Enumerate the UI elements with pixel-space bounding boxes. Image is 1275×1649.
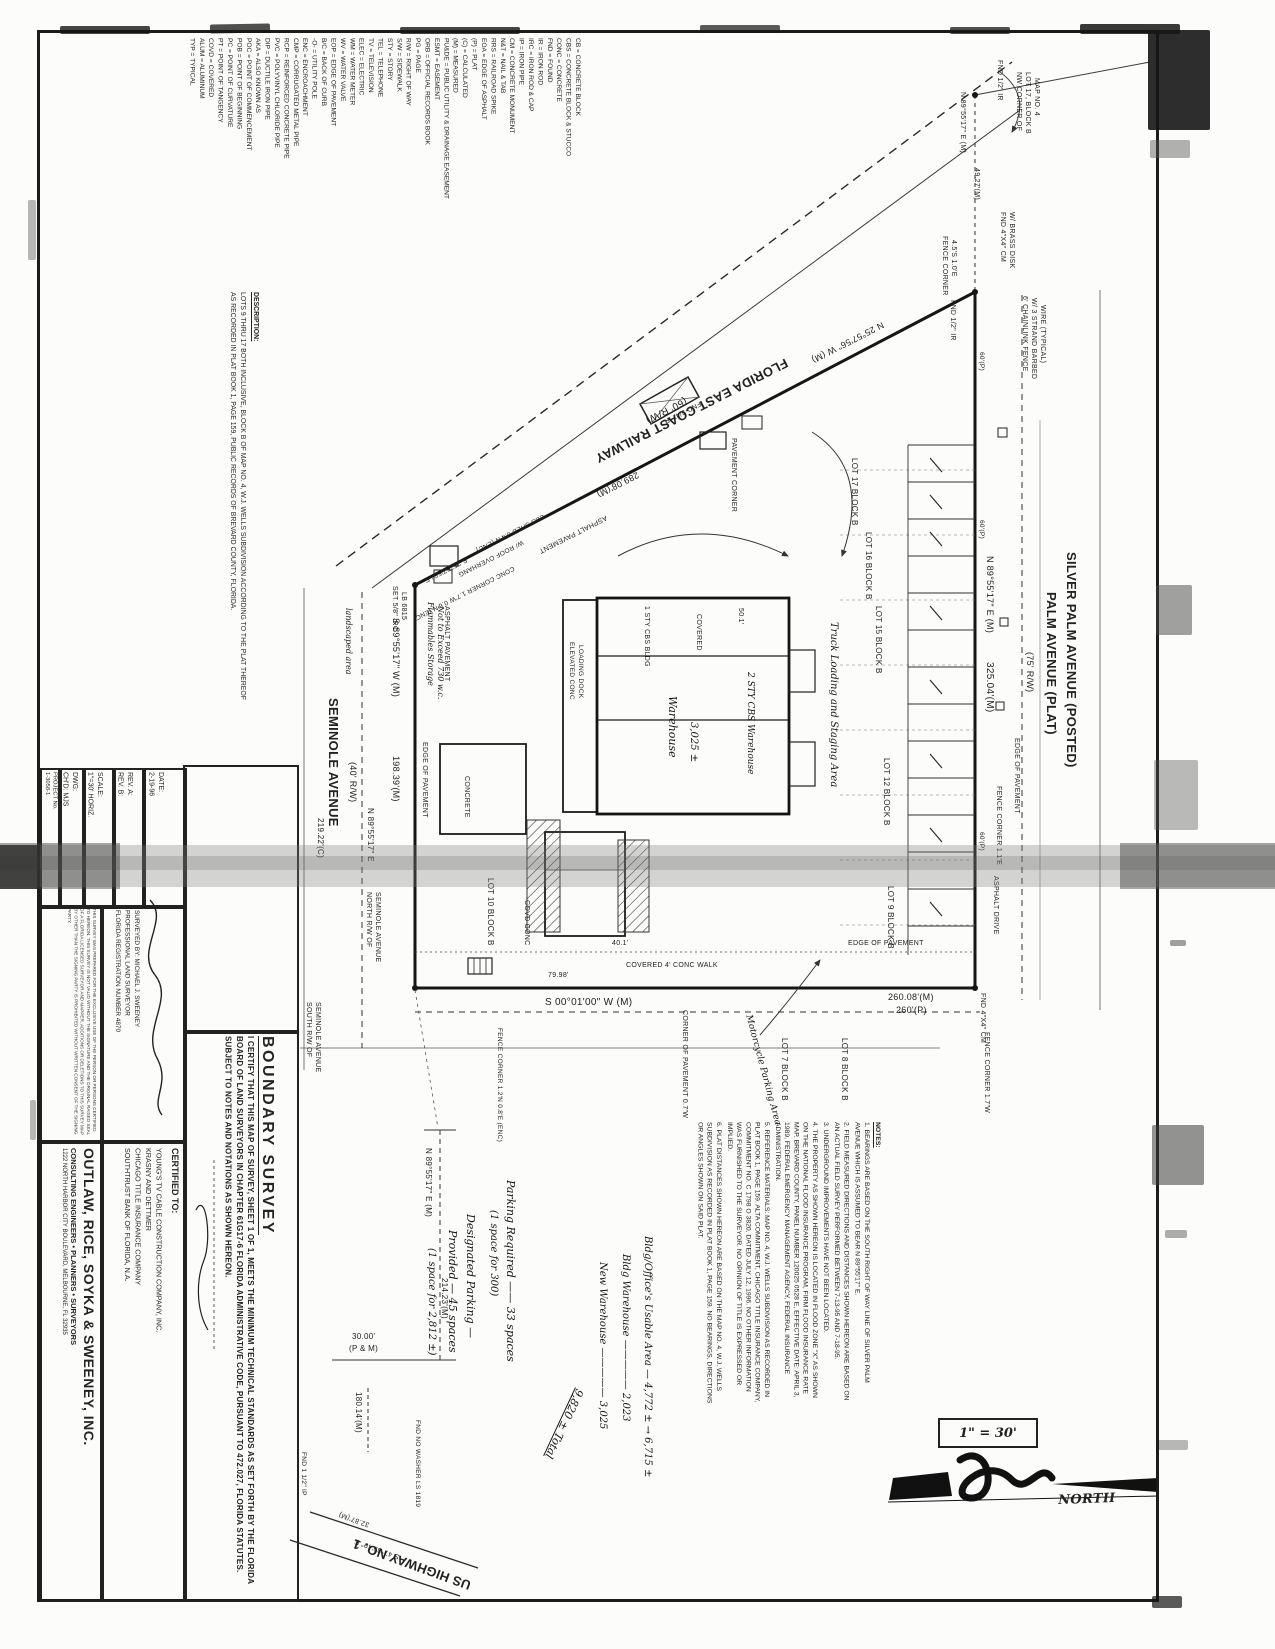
scanned-survey-page: CB = CONCRETE BLOCKCBS = CONCRETE BLOCK …: [0, 0, 1275, 1649]
map-annotation: FENCE CORNER 1.2'N 0.8'E (ENC): [496, 1028, 503, 1142]
map-annotation: MAP NO. 4: [1033, 78, 1040, 116]
map-annotation: COVERED 4' CONC WALK: [626, 962, 718, 969]
map-annotation: LOT 9 BLOCK B: [886, 886, 894, 949]
surveyed-by: SURVEYED BY: MICHAEL J. SWEENEY PROFESSI…: [103, 910, 141, 1136]
map-annotation: COVERED: [695, 614, 702, 651]
map-annotation: FND 1/2" IR: [949, 300, 956, 341]
map-annotation: (1 space for 2,812 ±): [426, 1248, 436, 1355]
description-body: LOTS 9 THRU 17 BOTH INCLUSIVE, BLOCK B O…: [227, 292, 247, 706]
page-title: BOUNDARY SURVEY: [258, 1036, 276, 1304]
legend-item: EOA = EDGE OF ASPHALT: [479, 38, 488, 370]
company-name: OUTLAW, RICE, SOYKA & SWEENEY, INC.: [79, 1148, 98, 1594]
map-annotation: 2 STY CBS Warehouse: [745, 672, 754, 775]
scale-box: 1" = 30': [938, 1418, 1038, 1448]
map-annotation: 219.22'(C): [316, 818, 324, 858]
legend-item: PVC = POLYVINYL CHLORIDE PIPE: [272, 38, 281, 370]
map-annotation: 1 STY CBS BLDG: [643, 606, 650, 667]
note-item: 4. THE PROPERTY AS SHOWN HEREON IS LOCAT…: [773, 1122, 819, 1408]
map-annotation: New Warehouse ————— 3,025: [597, 1262, 607, 1429]
map-annotation: LOADING DOCK: [577, 645, 584, 698]
map-annotation: SEMINOLE AVENUE: [327, 698, 340, 827]
map-annotation: 260.08'(M): [888, 993, 934, 1002]
map-annotation: FND 1/2" IR: [996, 60, 1003, 101]
notes-heading: NOTES:: [873, 1122, 882, 1408]
legend-item: S/W = SIDEWALK: [394, 38, 403, 370]
legend-item: ENC = ENCROACHMENT: [300, 38, 309, 370]
map-annotation: 40.1': [612, 940, 628, 947]
legend-item: PG = PAGE: [413, 38, 422, 370]
note-item: 3. UNDERGROUND IMPROVEMENTS HAVE NOT BEE…: [821, 1122, 830, 1408]
map-annotation: COVD CONC: [523, 900, 530, 945]
legend-item: CMP = CORRUGATED METAL PIPE: [290, 38, 299, 370]
map-annotation: PAVEMENT CORNER: [730, 438, 737, 512]
legend-item: IP = IRON PIPE: [516, 38, 525, 370]
legend-item: (P) = PLAT: [469, 38, 478, 370]
legend-item: CONC = CONCRETE: [554, 38, 563, 370]
description-heading: DESCRIPTION:: [250, 292, 260, 706]
notes: NOTES: 1. BEARINGS ARE BASED ON THE SOUT…: [642, 1122, 882, 1408]
map-annotation: NW CORNER OF: [1015, 72, 1022, 131]
certified-to-item: SOUTHTRUST BANK OF FLORIDA, N.A.: [122, 1148, 133, 1592]
legend-item: STY = STORY: [384, 38, 393, 370]
company-address: 1222 NORTH HARBOR CITY BOULEVARD, MELBOU…: [59, 1148, 68, 1594]
legend-item: EOP = EDGE OF PAVEMENT: [328, 38, 337, 370]
legend-item: TV = TELEVISION: [366, 38, 375, 370]
map-annotation: LOT 16 BLOCK B: [864, 532, 872, 600]
map-annotation: LOT 8 BLOCK B: [840, 1038, 848, 1101]
map-annotation: LOT 15 BLOCK B: [874, 606, 882, 674]
company-tagline: CONSULTING ENGINEERS • PLANNERS • SURVEY…: [68, 1148, 79, 1594]
map-annotation: EDGE OF PAVEMENT: [421, 742, 428, 818]
map-annotation: FENCE CORNER 1.7'W: [983, 1032, 990, 1113]
map-annotation: PALM AVENUE (PLAT): [1045, 592, 1058, 735]
note-item: 6. PLAT DISTANCES SHOWN HEREON ARE BASED…: [695, 1122, 723, 1408]
legend-item: (M) = MEASURED: [450, 38, 459, 370]
map-annotation: 50.1': [737, 608, 744, 624]
company-block: OUTLAW, RICE, SOYKA & SWEENEY, INC. CONS…: [42, 1148, 98, 1594]
certification-statement: I CERTIFY THAT THIS MAP OF SURVEY, SHEET…: [186, 1036, 256, 1588]
legend-item: WM = WATER METER: [347, 38, 356, 370]
date-field: DATE:2-19-96: [146, 772, 165, 902]
scale-field: SCALE:1"=30' HORIZ.: [85, 772, 104, 902]
map-annotation: FND NO WASHER LS 1819: [414, 1420, 421, 1507]
map-annotation: 198.39'(M): [391, 756, 400, 802]
legend-item: CBS = CONCRETE BLOCK & STUCCO: [563, 38, 572, 370]
legend-item: -O- = UTILITY POLE: [309, 38, 318, 370]
map-annotation: NORTH: [1058, 1492, 1116, 1507]
map-annotation: FENCE CORNER 1.1'E: [995, 786, 1002, 865]
map-annotation: 325.04'(M): [984, 662, 994, 713]
map-annotation: 79.98': [548, 972, 569, 979]
map-annotation: S 00°01'00" W (M): [545, 998, 632, 1008]
legend-item: TEL = TELEPHONE: [375, 38, 384, 370]
legend-item: ORB = OFFICIAL RECORDS BOOK: [422, 38, 431, 370]
map-annotation: Not to Exceed 730 w.c.: [436, 606, 444, 699]
titleblock-empty-cell: [183, 765, 299, 1034]
note-item: 5. REFERENCE MATERIALS: MAP NO. 4, W.J. …: [725, 1122, 771, 1408]
map-annotation: W/ BRASS DISK: [1008, 212, 1015, 268]
map-annotation: FND 1 1/2" IP: [300, 1452, 307, 1496]
map-annotation: CORNER OF PAVEMENT 0.7'W: [681, 1010, 688, 1118]
map-annotation: 3,025 ±: [688, 722, 698, 762]
map-annotation: landscaped area: [344, 608, 352, 675]
map-annotation: SILVER PALM AVENUE (POSTED): [1065, 552, 1078, 768]
map-annotation: 60'(P): [978, 520, 985, 539]
legend-item: ESMT = EASEMENT: [432, 38, 441, 370]
map-annotation: 260'(P): [896, 1006, 927, 1015]
map-annotation: Parking Required —— 33 spaces: [505, 1180, 516, 1362]
legend-item: CB = CONCRETE BLOCK: [573, 38, 582, 370]
legend-item: ELEC = ELECTRIC: [356, 38, 365, 370]
project-field: PROJECT No.1-3058-1: [42, 772, 58, 902]
map-annotation: LB 6815: [400, 592, 407, 620]
map-annotation: LOT 7 BLOCK B: [780, 1038, 788, 1101]
map-annotation: FENCE CORNER: [941, 236, 948, 296]
legend-item: B/C = BACK OF CURB: [319, 38, 328, 370]
note-item: 1. BEARINGS ARE BASED ON THE SOUTH RIGHT…: [852, 1122, 870, 1408]
dwg-field: DWG:CH'D: MJS: [60, 772, 79, 902]
map-annotation: Bldg Warehouse ————— 2,023: [620, 1254, 630, 1422]
map-annotation: 60'(P): [978, 352, 985, 371]
map-annotation: N 89°55'17" E (M): [959, 92, 966, 153]
map-annotation: EDGE OF PAVEMENT: [1013, 738, 1020, 814]
map-annotation: FND 4"X4" CM: [999, 212, 1006, 262]
legend-item: R/W = RIGHT OF WAY: [403, 38, 412, 370]
map-annotation: WIRE (TYPICAL): [1039, 305, 1046, 363]
map-annotation: (40' R/W): [348, 762, 357, 802]
map-annotation: W/ 3 STRAND BARBED: [1030, 298, 1037, 379]
legend-item: PU&DE = PUBLIC UTILITY & DRAINAGE EASEME…: [441, 38, 450, 370]
map-annotation: LOT 12 BLOCK B: [882, 758, 890, 826]
map-annotation: Truck Loading and Staging Area: [828, 622, 838, 787]
map-annotation: (P & M): [349, 1345, 378, 1353]
map-annotation: (1 space for 300): [488, 1210, 498, 1296]
scale-text: 1" = 30': [959, 1426, 1017, 1441]
map-annotation: Designated Parking —: [465, 1214, 476, 1338]
legend-item: RCP = REINFORCED CONCRETE PIPE: [281, 38, 290, 370]
legend-item: FND = FOUND: [544, 38, 553, 370]
map-annotation: ELEVATED CONC: [568, 642, 575, 700]
map-annotation: SEMINOLE AVENUE: [314, 1002, 321, 1073]
map-annotation: 180.14'(M): [354, 1392, 362, 1433]
map-annotation: NORTH R/W OF: [365, 892, 372, 948]
map-annotation: Provided — 45 spaces: [447, 1230, 458, 1353]
legend-item: IRC = IRON ROD & CAP: [526, 38, 535, 370]
rev-field: REV. A:REV. B:: [115, 772, 134, 902]
map-annotation: Flammables Storage: [426, 602, 434, 686]
map-annotation: SOUTH R/W OF: [305, 1002, 312, 1057]
legend-item: IR = IRON ROD: [535, 38, 544, 370]
map-annotation: (75' R/W): [1025, 652, 1034, 692]
map-annotation: 4.5'S 1.0'E: [950, 240, 957, 277]
map-annotation: LOT 17, BLOCK B: [1024, 72, 1031, 134]
legend-item: WV = WATER VALVE: [337, 38, 346, 370]
certified-to-item: KRASNY AND DETTMER: [143, 1148, 154, 1592]
map-annotation: 30.00': [352, 1333, 375, 1341]
map-annotation: CONCRETE: [463, 776, 470, 818]
map-annotation: LOT 10 BLOCK B: [486, 878, 494, 946]
map-annotation: N 89°55'17" E: [366, 808, 374, 862]
map-annotation: Bldg/Office's Usable Area — 4,772 ± → 6,…: [642, 1236, 652, 1477]
map-annotation: 49.27'(M): [973, 168, 980, 200]
map-annotation: LOT 17 BLOCK B: [850, 458, 858, 526]
disclaimer-fineprint: THIS SURVEY WAS PREPARED FOR THE EXCLUSI…: [42, 908, 97, 1136]
legend-item: DIP = DUCTILE IRON PIPE: [262, 38, 271, 370]
map-annotation: SET 5/8" IRC: [391, 586, 398, 631]
legend-item: N&T = NAIL & TAB: [497, 38, 506, 370]
legend-item: (C) = CALCULATED: [460, 38, 469, 370]
map-annotation: Warehouse: [667, 696, 678, 758]
legend-item: RRS = RAILROAD SPIKE: [488, 38, 497, 370]
certified-to: CERTIFIED TO: YOUNG'S TV CABLE CONSTRUCT…: [104, 1148, 180, 1592]
certified-to-item: CHICAGO TITLE INSURANCE COMPANY: [132, 1148, 143, 1592]
map-annotation: N 89°55'17" E (M): [985, 556, 994, 633]
certified-to-heading: CERTIFIED TO:: [170, 1148, 181, 1592]
map-annotation: ASPHALT DRIVE: [992, 876, 999, 935]
map-annotation: SEMINOLE AVENUE: [374, 892, 381, 963]
legend-item: CM = CONCRETE MONUMENT: [507, 38, 516, 370]
legal-description: DESCRIPTION: LOTS 9 THRU 17 BOTH INCLUSI…: [158, 292, 260, 706]
note-item: 2. FIELD MEASURED DIRECTIONS AND DISTANC…: [832, 1122, 850, 1408]
map-annotation: N 89°55'17" E (M): [424, 1148, 432, 1217]
map-annotation: 6' CHAINLINK FENCE: [1021, 296, 1028, 372]
certified-to-item: YOUNG'S TV CABLE CONSTRUCTION COMPANY, I…: [153, 1148, 164, 1592]
map-annotation: 60'(P): [978, 832, 985, 851]
